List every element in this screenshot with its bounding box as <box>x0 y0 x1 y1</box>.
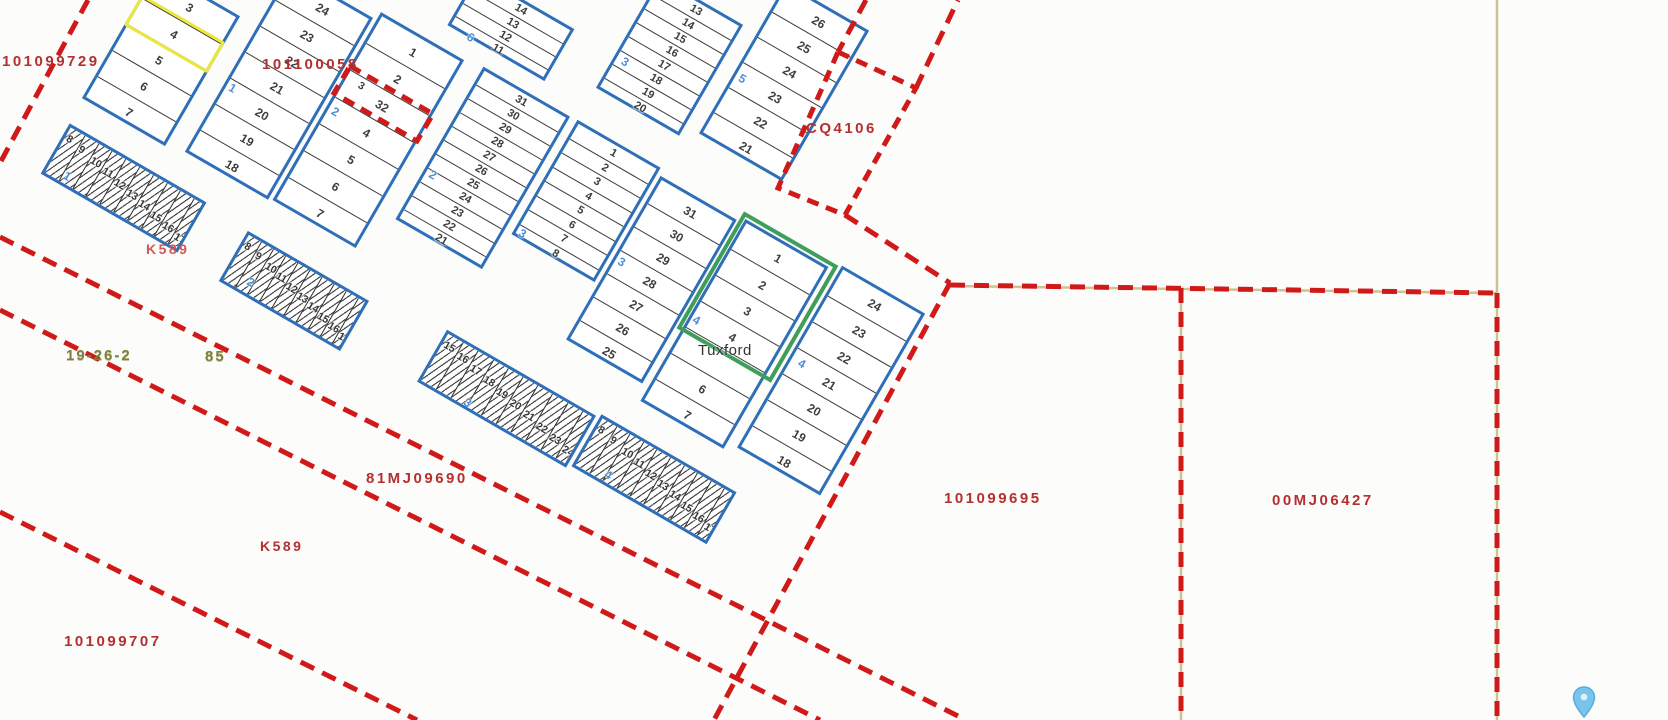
lot-number: 5 <box>575 205 586 218</box>
section-township-label-85: 85 <box>205 349 226 364</box>
lot-number: 19 <box>791 427 809 444</box>
parcel-id-label-CQ4106: CQ4106 <box>806 121 877 136</box>
section-township-label-19-26-2: 19-26-2 <box>66 348 132 363</box>
lot-number: 23 <box>851 323 869 340</box>
lot-number: 2 <box>392 73 404 87</box>
lot-number: 3 <box>184 1 196 15</box>
lot-number: 22 <box>752 114 770 131</box>
lot-number: 22 <box>283 53 301 70</box>
lot-number: 7 <box>123 105 135 119</box>
lot-number: 32 <box>373 98 391 115</box>
lot-number: 6 <box>330 180 342 194</box>
lot-number: 2 <box>757 278 769 292</box>
boundary-dashed-red <box>845 215 950 283</box>
lot-number: 26 <box>810 13 828 30</box>
hatched-block-hA: 8910111213141516171 <box>41 123 207 252</box>
lot-number: 6 <box>567 219 578 232</box>
lot-number: 27 <box>627 298 645 315</box>
lot-number: 5 <box>345 153 357 167</box>
lot-number: 1 <box>772 252 784 266</box>
lot-number: 4 <box>361 126 373 140</box>
lot-number: 4 <box>727 330 739 344</box>
lot-number: 21 <box>737 139 755 156</box>
parcel-id-label-81MJ09690: 81MJ09690 <box>366 471 468 486</box>
lot-number: 1 <box>608 147 619 160</box>
lot-number: 31 <box>682 204 700 221</box>
lot-number: 21 <box>821 375 839 392</box>
lot-number: 21 <box>433 232 449 248</box>
lot-number: 5 <box>153 53 165 67</box>
lot-number: 3 <box>742 304 754 318</box>
cadastral-map-viewport: { "map": { "background": "#fcfcfa", "col… <box>0 0 1668 720</box>
boundary-dashed-red <box>950 285 1497 293</box>
lot-number: 23 <box>766 89 784 106</box>
lot-number: 26 <box>614 321 632 338</box>
lot-number: 20 <box>806 401 824 418</box>
parcel-id-label-K589: K589 <box>260 539 303 553</box>
lot-number: 6 <box>138 79 150 93</box>
lot-number: 7 <box>558 233 569 246</box>
parcel-id-label-101099707: 101099707 <box>64 634 162 649</box>
lot-number: 20 <box>632 100 648 116</box>
lot-number: 24 <box>314 1 332 18</box>
lot-number: 23 <box>298 27 316 44</box>
lot-number: 29 <box>654 251 672 268</box>
lot-number: 8 <box>550 248 561 261</box>
lot-number: 18 <box>223 157 241 174</box>
lot-number: 24 <box>781 64 799 81</box>
hatched-block-hD: 151617181920212223243 <box>417 330 596 468</box>
lot-number: 19 <box>238 131 256 148</box>
lot-number: 20 <box>253 105 271 122</box>
lot-number: 1 <box>407 45 419 59</box>
lot-number: 7 <box>314 207 326 221</box>
lot-number: 21 <box>268 79 286 96</box>
lot-number: 24 <box>866 297 884 314</box>
lot-number: 7 <box>682 408 694 422</box>
survey-line <box>950 286 1497 293</box>
lot-number: 4 <box>583 191 594 204</box>
lot-number: 28 <box>641 274 659 291</box>
lot-number: 4 <box>168 27 180 41</box>
parcel-id-label-101099729: 101099729 <box>2 54 100 69</box>
lot-number: 18 <box>776 453 794 470</box>
parcel-id-label-00MJ06427: 00MJ06427 <box>1272 493 1374 508</box>
lot-number: 6 <box>697 382 709 396</box>
boundary-dashed-red <box>916 0 958 88</box>
lot-number: 25 <box>600 344 618 361</box>
block-P: 141312116 <box>447 0 574 81</box>
lot-number: 11 <box>490 42 506 57</box>
lot-number: 30 <box>668 227 686 244</box>
map-pin-icon <box>1572 686 1596 718</box>
lot-number: 2 <box>600 162 611 175</box>
hatched-block-hB: 8910111213141516172 <box>219 231 369 351</box>
boundary-dashed-red <box>0 512 417 720</box>
lot-number: 3 <box>591 176 602 189</box>
parcel-id-label-101099695: 101099695 <box>944 491 1042 506</box>
lot-number: 22 <box>836 349 854 366</box>
lot-number: 25 <box>795 39 813 56</box>
